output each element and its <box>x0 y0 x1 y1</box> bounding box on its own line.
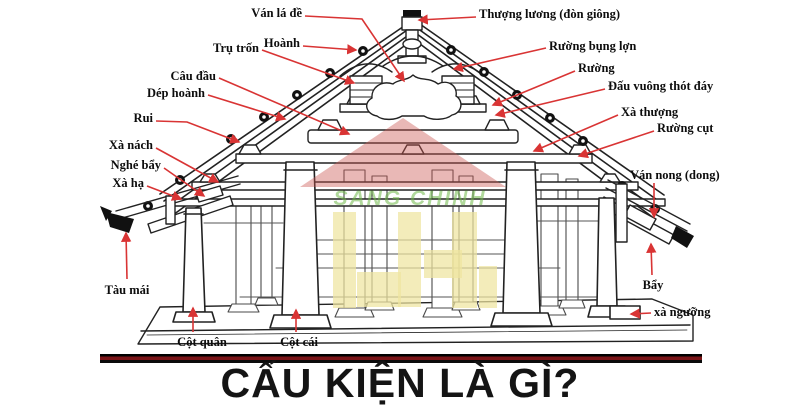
page-title: CẤU KIỆN LÀ GÌ? <box>0 360 800 407</box>
xa-nguong-block <box>610 306 640 319</box>
label-bay: Bẩy <box>643 278 664 292</box>
watermark: SANG CHINH <box>300 118 506 308</box>
label-dau-vuong: Đấu vuông thót đáy <box>608 79 713 93</box>
label-cot-cai: Cột cái <box>280 335 318 349</box>
leader-xa-nach <box>156 148 218 182</box>
label-rui: Rui <box>134 111 153 125</box>
leader-tru-tron <box>262 50 354 83</box>
label-van-nong: Ván nong (dong) <box>630 168 720 182</box>
label-ruong-bung-lon: Rường bụng lợn <box>549 39 636 53</box>
watermark-text: SANG CHINH <box>333 187 486 210</box>
van-la-de-panel <box>350 75 474 119</box>
leader-bay <box>651 244 652 275</box>
label-tru-tron: Trụ trốn <box>213 41 259 55</box>
label-ruong-cut: Rường cụt <box>657 121 713 135</box>
ridge-assembly <box>398 10 426 63</box>
label-xa-nach: Xà nách <box>109 138 153 152</box>
leader-dau-vuong <box>496 89 605 115</box>
leader-thuong-luong <box>419 17 476 20</box>
label-thuong-luong: Thượng lương (đòn giông) <box>479 7 620 21</box>
leader-cau-dau <box>219 78 349 134</box>
label-nghe-bay: Nghé bẩy <box>111 158 161 172</box>
label-dep-hoanh: Dép hoành <box>147 86 205 100</box>
leader-xa-nguong <box>631 313 651 314</box>
label-xa-ha: Xà hạ <box>112 176 144 190</box>
label-xa-thuong: Xà thượng <box>621 105 678 119</box>
label-cau-dau: Câu đầu <box>170 69 216 83</box>
label-xa-nguong: xà ngưỡng <box>654 305 710 319</box>
leader-tau-mai <box>126 233 127 279</box>
leader-dep-hoanh <box>208 95 285 119</box>
label-tau-mai: Tàu mái <box>105 283 150 297</box>
label-cot-quan: Cột quân <box>177 335 227 349</box>
label-van-la-de: Ván lá đề <box>251 6 302 20</box>
leader-hoanh <box>303 46 356 50</box>
screenshot-root: SANG CHINH Ván lá đềThượng lương (đòn gi… <box>0 0 800 418</box>
label-hoanh: Hoành <box>264 36 300 50</box>
label-ruong: Rường <box>578 61 615 75</box>
